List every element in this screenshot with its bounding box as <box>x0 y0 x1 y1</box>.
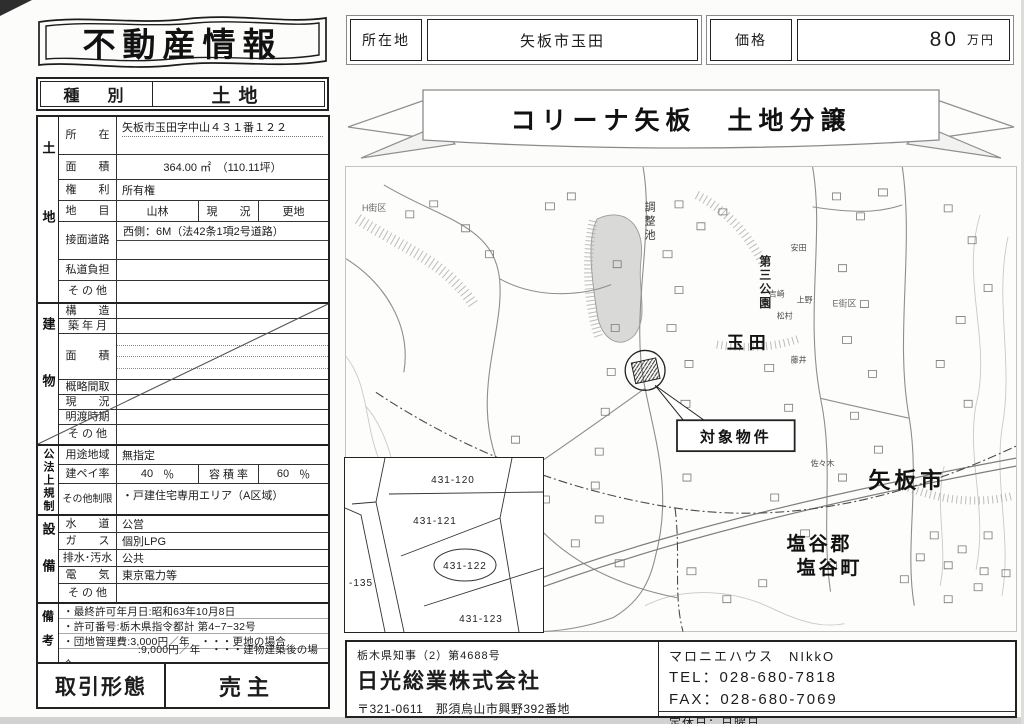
location-value: 矢板市玉田 <box>427 19 698 61</box>
location-map: 対象物件 H街区 調整池 第三公園 E街区 玉田 矢板市 塩谷郡 塩谷町 安田 … <box>345 166 1017 632</box>
row-private-road-value <box>117 260 328 280</box>
household-name: 吉崎 <box>769 289 785 299</box>
company-brand: マロニエハウス NIkkO <box>669 646 1005 665</box>
company-address: 〒321-0611 那須烏山市興野392番地 <box>357 700 648 717</box>
row-gas: ガ ス 個別LPG <box>59 533 328 550</box>
section-building: 建物 構 造 築 年 月 面 積 概略間取 <box>38 304 328 446</box>
row-water-value: 公営 <box>117 516 328 532</box>
row-building-other-label: そ の 他 <box>59 425 117 444</box>
park-label: 第三公園 <box>758 253 772 310</box>
parcel-inset-drawing: 431-120 431-121 431-122 431-123 -135 <box>345 458 543 632</box>
row-utilities-other: そ の 他 <box>59 584 328 602</box>
household-name: 松村 <box>777 311 793 321</box>
row-drainage: 排水･汚水 公共 <box>59 550 328 567</box>
location-label: 所在地 <box>350 19 422 61</box>
transaction-value: 売主 <box>166 664 328 707</box>
row-area: 面 積 364.00 ㎡ （110.11坪） <box>59 155 328 180</box>
row-layout: 概略間取 <box>59 380 328 395</box>
row-layout-value <box>117 380 328 394</box>
company-license: 栃木県知事（2）第4688号 <box>357 647 648 663</box>
section-utilities-group-label: 設備 <box>38 516 59 602</box>
row-built-date: 築 年 月 <box>59 319 328 334</box>
row-location: 所 在 矢板市玉田字中山４３１番１２２ <box>59 117 328 155</box>
parcel-inset-diagram: 431-120 431-121 431-122 431-123 -135 <box>344 457 544 633</box>
row-far-label: 容 積 率 <box>199 465 259 483</box>
row-land-category-label: 地 目 <box>59 201 117 221</box>
price-unit: 万円 <box>967 31 995 50</box>
row-zoning-label: 用途地域 <box>59 446 117 464</box>
company-fax: FAX：028-680-7069 <box>669 688 1005 709</box>
row-facing-road-label: 接面道路 <box>59 222 117 259</box>
row-vacate-time: 明渡時期 <box>59 410 328 425</box>
row-gas-value: 個別LPG <box>117 533 328 549</box>
e-block-label: E街区 <box>833 298 857 309</box>
section-utilities: 設備 水 道 公営 ガ ス 個別LPG 排水･汚水 公共 電 気 東京電力等 <box>38 516 328 604</box>
row-building-state-label: 現 況 <box>59 395 117 409</box>
price-value: 80 万円 <box>797 19 1010 61</box>
row-land-category-value: 山林 <box>117 201 199 221</box>
row-rights: 権 利 所有権 <box>59 180 328 201</box>
row-rights-value: 所有権 <box>117 180 328 200</box>
row-drainage-label: 排水･汚水 <box>59 550 117 566</box>
household-name: 佐々木 <box>811 458 835 468</box>
row-drainage-value: 公共 <box>117 550 328 566</box>
row-current-state-value: 更地 <box>259 201 328 221</box>
flyer-page: 不動産情報 種 別 土地 所在地 矢板市玉田 価格 80 万円 土地 所 在 矢… <box>0 0 1024 724</box>
row-other-restrictions: その他制限 ・戸建住宅専用エリア（A区域） <box>59 484 328 514</box>
company-info: 栃木県知事（2）第4688号 日光総業株式会社 〒321-0611 那須烏山市興… <box>345 640 1017 718</box>
type-label: 種 別 <box>41 82 153 106</box>
row-land-other-value <box>117 281 328 302</box>
row-facing-road: 接面道路 西側：6M（法42条1項2号道路） <box>59 222 328 260</box>
row-current-state-label: 現 況 <box>199 201 259 221</box>
section-land: 土地 所 在 矢板市玉田字中山４３１番１２２ 面 積 364.00 ㎡ （110… <box>38 117 328 304</box>
row-area-value: 364.00 ㎡ （110.11坪） <box>117 155 328 179</box>
remark-line: ・許可番号:栃木県指令都計 第4−7−32号 <box>59 619 328 634</box>
transaction-label: 取引形態 <box>38 664 166 707</box>
row-utilities-other-label: そ の 他 <box>59 584 117 602</box>
section-building-group-label: 建物 <box>38 304 59 444</box>
row-built-date-value <box>117 319 328 333</box>
row-layout-label: 概略間取 <box>59 380 117 394</box>
scan-artifact-corner <box>0 0 32 16</box>
row-structure-label: 構 造 <box>59 304 117 318</box>
property-table: 土地 所 在 矢板市玉田字中山４３１番１２２ 面 積 364.00 ㎡ （110… <box>36 115 330 666</box>
type-value: 土地 <box>153 82 324 106</box>
parcel-label-121: 431-121 <box>413 516 457 527</box>
row-land-other-label: そ の 他 <box>59 281 117 302</box>
row-electricity-label: 電 気 <box>59 567 117 583</box>
row-facing-road-value: 西側：6M（法42条1項2号道路） <box>117 222 328 241</box>
banner-title: コリーナ矢板 土地分譲 <box>425 96 937 142</box>
parcel-label-122: 431-122 <box>443 561 487 572</box>
section-remarks: 備考 ・最終許可年月日:昭和63年10月8日 ・許可番号:栃木県指令都計 第4−… <box>38 604 328 664</box>
row-other-restrictions-label: その他制限 <box>59 484 117 514</box>
row-coverage-label: 建ペイ率 <box>59 465 117 483</box>
target-property-label: 対象物件 <box>699 428 772 446</box>
transaction-box: 取引形態 売主 <box>36 662 330 709</box>
section-remarks-group-label: 備考 <box>38 604 59 664</box>
sales-banner: コリーナ矢板 土地分譲 <box>345 82 1017 164</box>
map-pond <box>588 215 642 342</box>
shioya-gun-label: 塩谷郡 <box>787 532 853 555</box>
row-building-other: そ の 他 <box>59 425 328 444</box>
row-area-label: 面 積 <box>59 155 117 179</box>
row-other-restrictions-value: ・戸建住宅専用エリア（A区域） <box>117 484 328 514</box>
household-name: 藤井 <box>791 354 807 364</box>
document-title-stamp: 不動産情報 <box>36 13 329 70</box>
row-structure: 構 造 <box>59 304 328 319</box>
parcel-label-120: 431-120 <box>431 475 475 486</box>
row-private-road: 私道負担 <box>59 260 328 281</box>
type-box: 種 別 土地 <box>36 77 329 111</box>
row-location-label: 所 在 <box>59 117 117 154</box>
row-vacate-time-label: 明渡時期 <box>59 410 117 424</box>
row-vacate-time-value <box>117 410 328 424</box>
row-building-state-value <box>117 395 328 409</box>
company-name: 日光総業株式会社 <box>357 665 648 695</box>
price-number: 80 <box>930 28 959 52</box>
row-electricity-value: 東京電力等 <box>117 567 328 583</box>
company-right: マロニエハウス NIkkO TEL：028-680-7818 FAX：028-6… <box>659 642 1015 716</box>
household-name: 安田 <box>791 243 807 253</box>
row-built-date-label: 築 年 月 <box>59 319 117 333</box>
row-building-area-label: 面 積 <box>59 334 117 379</box>
row-land-category: 地 目 山林 現 況 更地 <box>59 201 328 222</box>
company-left: 栃木県知事（2）第4688号 日光総業株式会社 〒321-0611 那須烏山市興… <box>347 642 659 716</box>
row-electricity: 電 気 東京電力等 <box>59 567 328 584</box>
tamada-label: 玉田 <box>727 333 771 352</box>
section-land-group-label: 土地 <box>38 117 59 302</box>
row-building-area: 面 積 <box>59 334 328 380</box>
row-facing-road-blank <box>117 241 328 259</box>
row-location-value: 矢板市玉田字中山４３１番１２２ <box>122 119 323 137</box>
row-water-label: 水 道 <box>59 516 117 532</box>
company-holiday: 定休日：日曜日 <box>659 711 1015 724</box>
parcel-label-edge: -135 <box>349 578 373 589</box>
row-zoning-value: 無指定 <box>117 446 328 464</box>
section-regulation: 公法上規制 用途地域 無指定 建ペイ率 40％ 容 積 率 60％ <box>38 446 328 516</box>
price-label: 価格 <box>710 19 792 61</box>
location-group: 所在地 矢板市玉田 <box>346 15 702 65</box>
row-coverage-value: 40％ <box>117 465 199 483</box>
row-water: 水 道 公営 <box>59 516 328 533</box>
parcel-label-123: 431-123 <box>459 614 503 625</box>
page-title: 不動産情報 <box>36 13 329 70</box>
h-block-label: H街区 <box>362 202 386 213</box>
shioya-machi-label: 塩谷町 <box>797 556 863 579</box>
household-name: 上野 <box>797 296 813 305</box>
row-rights-label: 権 利 <box>59 180 117 200</box>
remark-line: ・最終許可年月日:昭和63年10月8日 <box>59 604 328 619</box>
row-private-road-label: 私道負担 <box>59 260 117 280</box>
yaita-city-label: 矢板市 <box>868 468 946 493</box>
row-coverage-ratio: 建ペイ率 40％ 容 積 率 60％ <box>59 465 328 484</box>
row-building-state: 現 況 <box>59 395 328 410</box>
row-gas-label: ガ ス <box>59 533 117 549</box>
section-regulation-group-label: 公法上規制 <box>38 446 59 514</box>
row-structure-value <box>117 304 328 318</box>
row-land-other: そ の 他 <box>59 281 328 302</box>
row-building-other-value <box>117 425 328 444</box>
map-slope-hatching <box>358 195 1012 501</box>
row-zoning: 用途地域 無指定 <box>59 446 328 465</box>
row-far-value: 60％ <box>259 465 328 483</box>
price-group: 価格 80 万円 <box>706 15 1014 65</box>
company-tel: TEL：028-680-7818 <box>669 666 1005 687</box>
pond-label: 調整池 <box>643 200 655 243</box>
row-utilities-other-value <box>117 584 328 602</box>
